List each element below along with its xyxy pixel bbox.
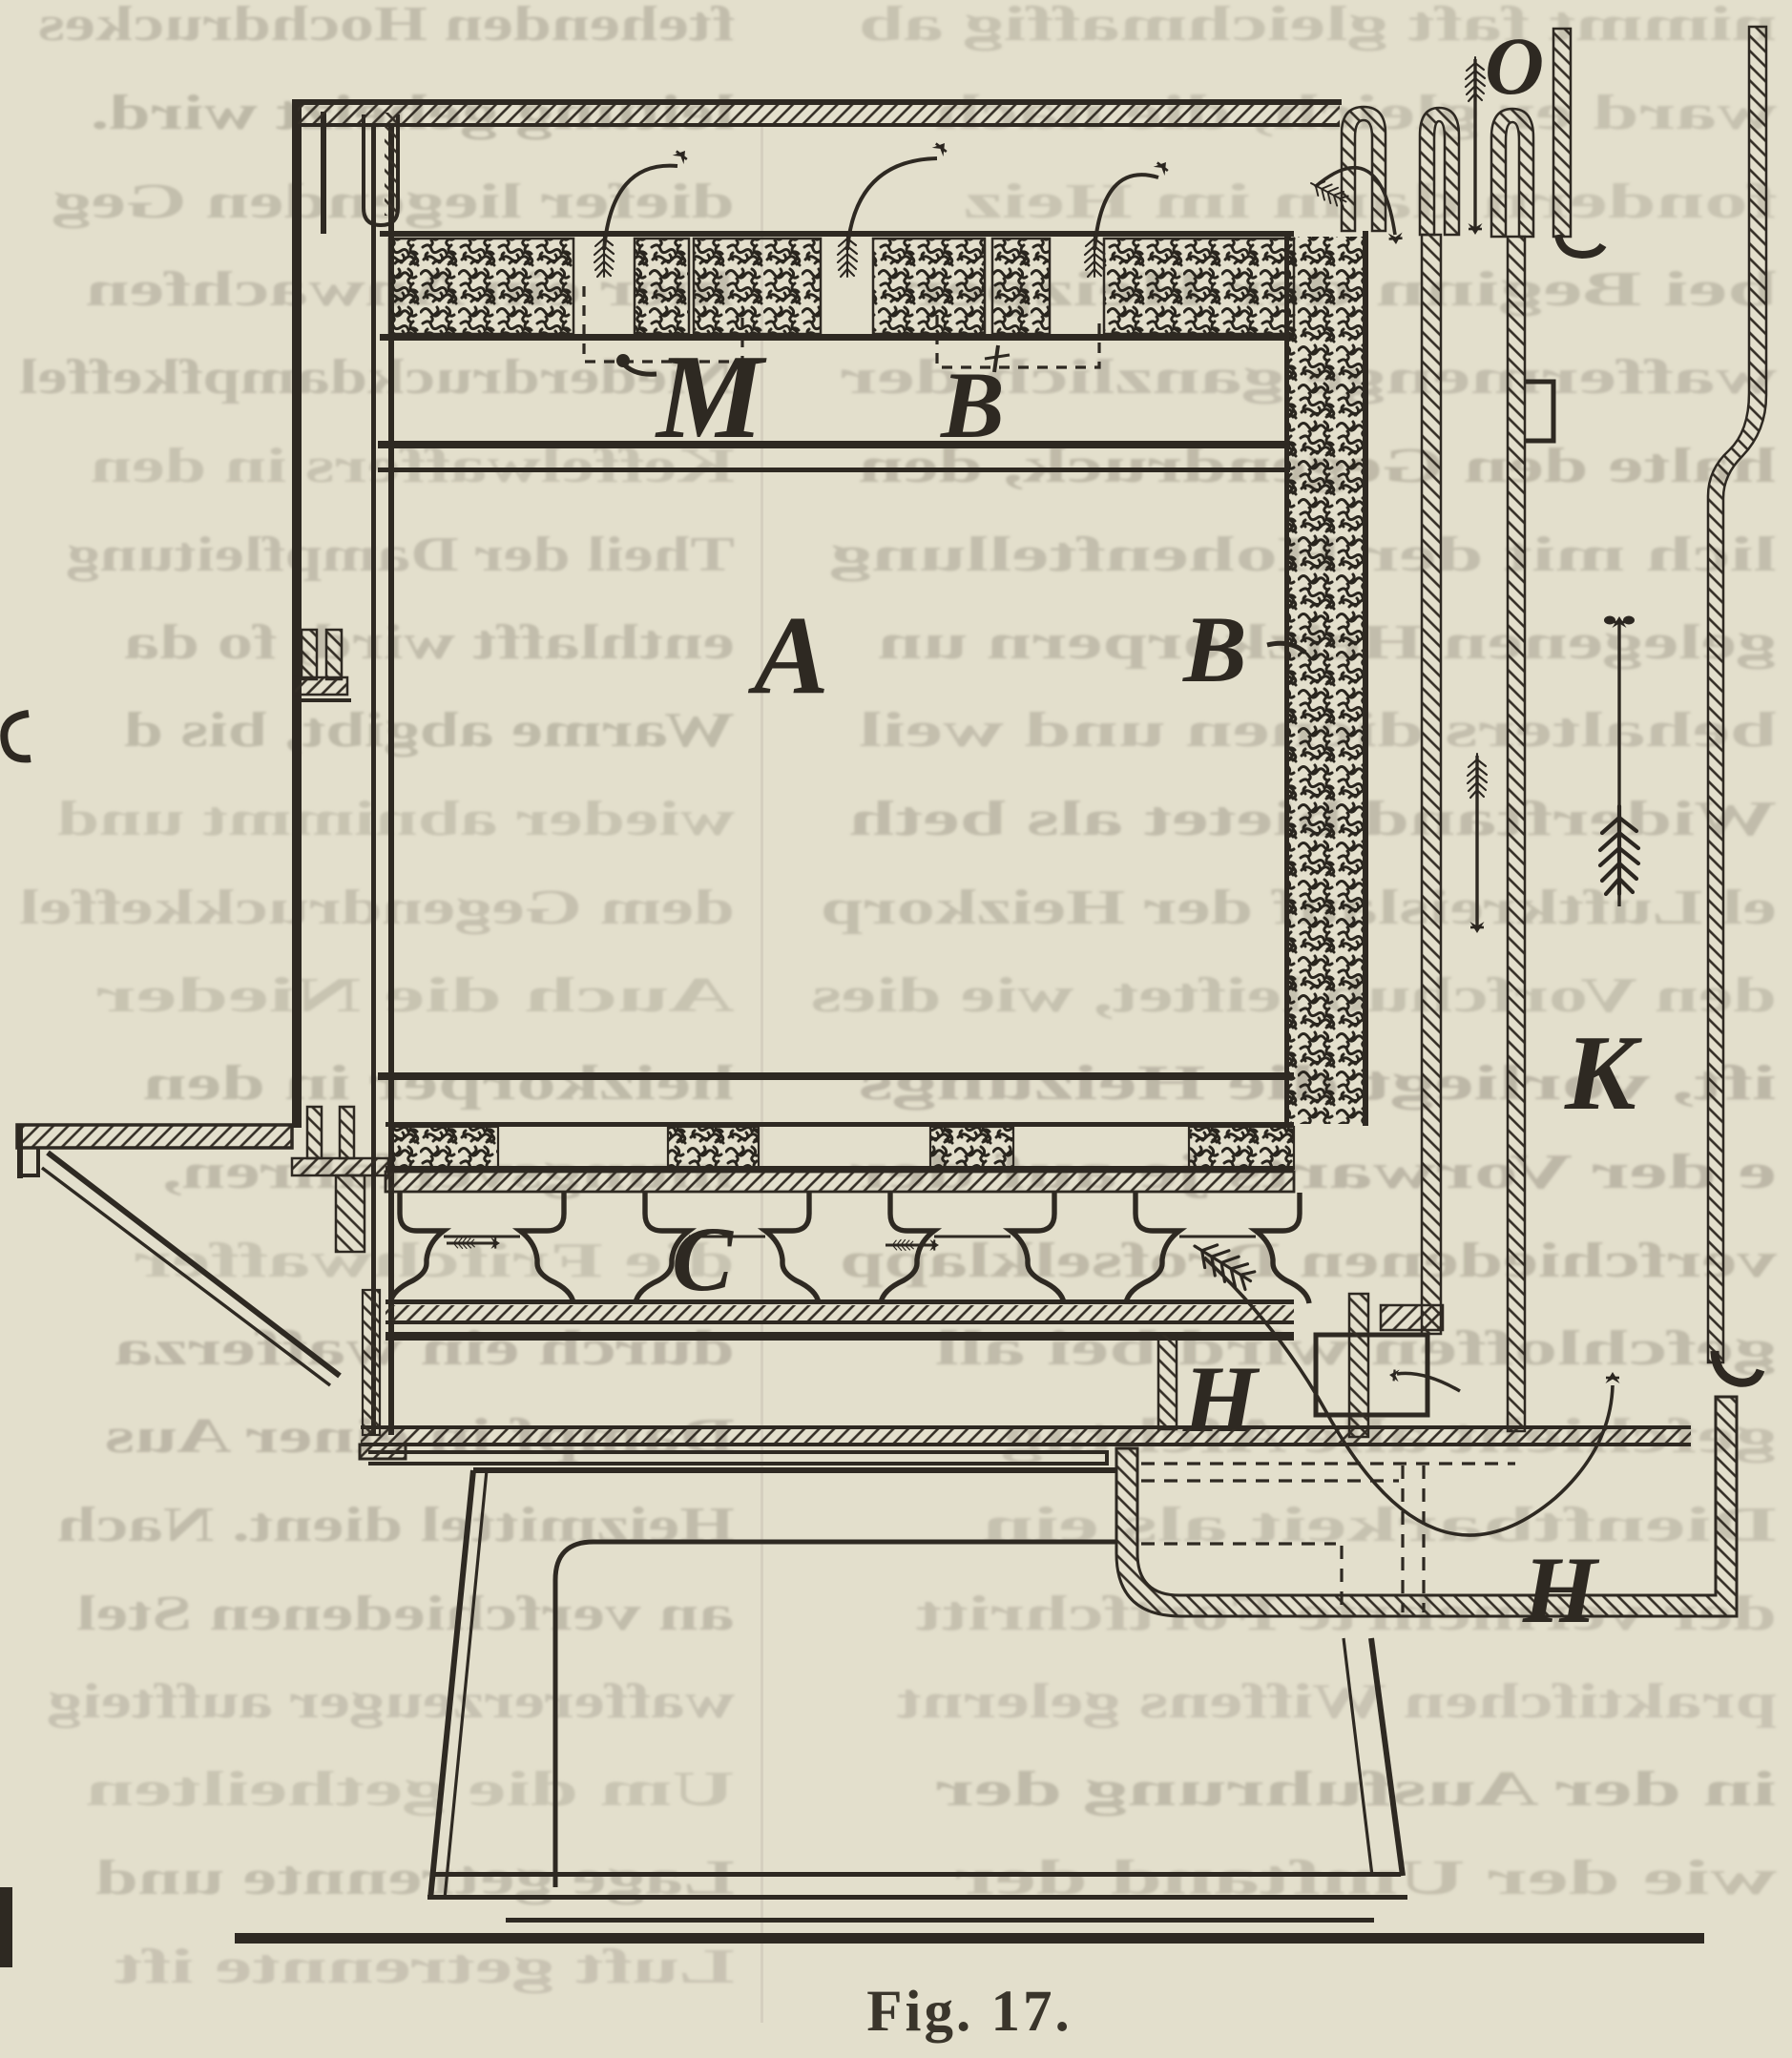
- svg-text:K: K: [1564, 1014, 1642, 1133]
- svg-text:Warme abgibt, bis d: Warme abgibt, bis d: [124, 703, 735, 758]
- svg-text:Luft getrennte ift: Luft getrennte ift: [114, 1940, 735, 1994]
- svg-text:C: C: [672, 1208, 734, 1310]
- svg-text:dem Gegendruckkeffel: dem Gegendruckkeffel: [19, 881, 735, 935]
- svg-text:A: A: [747, 592, 829, 717]
- svg-text:Um die getheilten: Um die getheilten: [86, 1762, 735, 1817]
- svg-text:Theil der Dampfleitung: Theil der Dampfleitung: [67, 528, 735, 582]
- svg-text:an verfchiedenen Stel: an verfchiedenen Stel: [76, 1587, 735, 1641]
- svg-text:wieder abnimmt und: wieder abnimmt und: [57, 792, 735, 846]
- svg-text:B: B: [1182, 596, 1247, 702]
- svg-text:in der Ausfuhrung der: in der Ausfuhrung der: [935, 1762, 1777, 1817]
- svg-text:waffererzeuger auffteig: waffererzeuger auffteig: [48, 1674, 735, 1729]
- svg-text:Auch die Nieder: Auch die Nieder: [95, 968, 735, 1023]
- svg-text:verfchiedenen Drofselklapp: verfchiedenen Drofselklapp: [840, 1234, 1777, 1288]
- svg-text:Fig. 17.: Fig. 17.: [866, 1980, 1072, 2044]
- svg-text:ftehenden Hochdruckes: ftehenden Hochdruckes: [38, 0, 735, 52]
- svg-text:O: O: [1485, 20, 1544, 112]
- svg-text:H: H: [1522, 1537, 1600, 1643]
- svg-text:heizkorper in den: heizkorper in den: [143, 1056, 735, 1111]
- svg-text:praktifchen Wiffens gelernt: praktifchen Wiffens gelernt: [896, 1674, 1777, 1729]
- svg-text:fondern dann im Heiz: fondern dann im Heiz: [964, 175, 1777, 229]
- svg-text:durch ein wafferza: durch ein wafferza: [115, 1321, 735, 1376]
- svg-text:nimmt faft gleichmaffig ab: nimmt faft gleichmaffig ab: [859, 0, 1777, 52]
- svg-text:enthlafft wird, fo da: enthlafft wird, fo da: [124, 615, 735, 670]
